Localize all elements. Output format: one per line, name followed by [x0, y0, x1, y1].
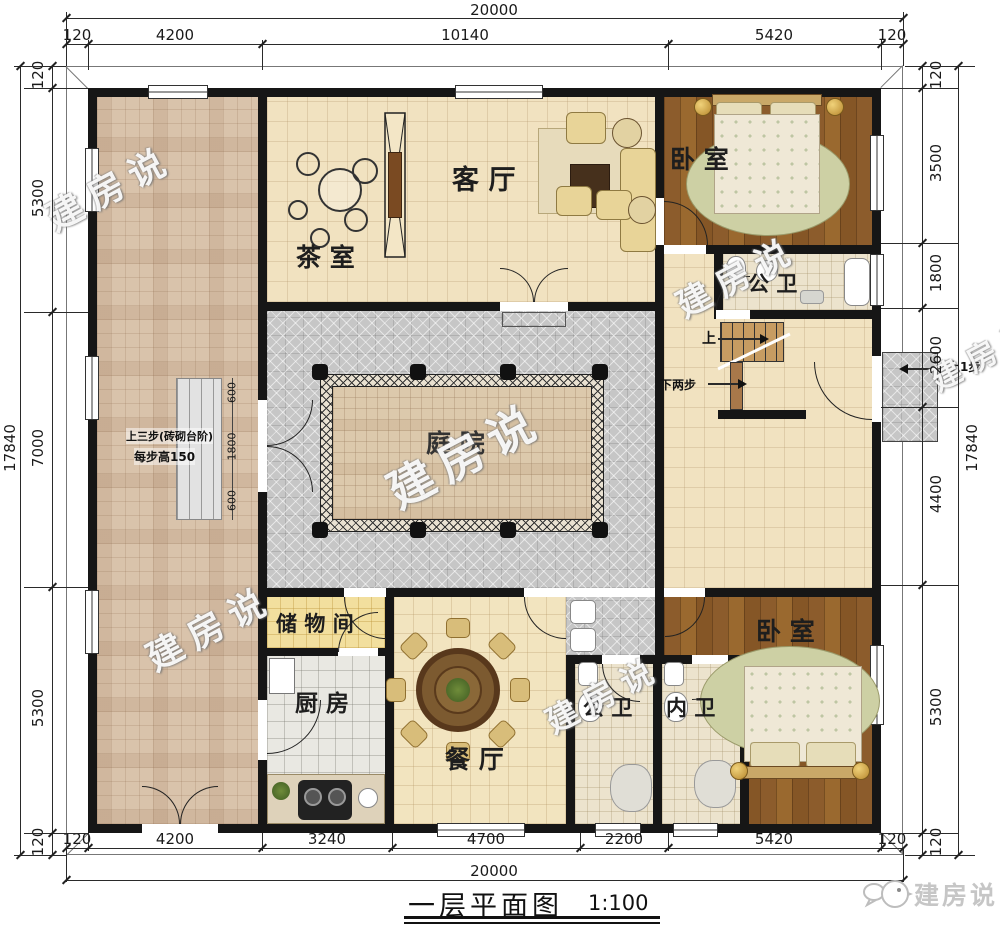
room-label-bath-ensuite: 内卫 — [666, 692, 723, 722]
steps-note-1: 上三步(砖砌台阶) — [126, 428, 213, 444]
tea-chair — [288, 200, 308, 220]
dim-seg: 120 — [927, 45, 945, 105]
bedside-lamp — [852, 762, 870, 780]
bedside-lamp — [730, 762, 748, 780]
door-opening — [664, 245, 706, 254]
armchair — [556, 186, 592, 216]
bed-pillow — [750, 742, 800, 768]
stove-burner — [328, 788, 346, 806]
dim-seg: 10140 — [415, 26, 515, 44]
drawing-scale: 1:100 — [588, 891, 649, 915]
wall-interior — [386, 588, 524, 597]
dim-seg: 5420 — [734, 830, 814, 848]
brand-mascot-icon — [862, 876, 914, 912]
column — [410, 364, 426, 380]
dim-line — [52, 66, 53, 855]
dim-seg: 120 — [927, 812, 945, 872]
wall-interior — [705, 588, 881, 597]
door-opening — [716, 310, 750, 319]
dim-seg: 2600 — [927, 325, 945, 385]
stair-up-label: 上 — [702, 328, 716, 348]
dim-seg: 120 — [29, 812, 47, 872]
dim-ext — [905, 66, 975, 67]
dim-seg: 7000 — [29, 418, 47, 478]
door-opening — [524, 588, 566, 597]
side-table — [628, 196, 656, 224]
brand-name: 建房说 — [914, 876, 998, 912]
wall-interior — [258, 310, 267, 400]
caption-underline — [404, 916, 660, 919]
centerpiece-plant — [446, 678, 470, 702]
dim-seg: 1800 — [927, 243, 945, 303]
floor-plan-canvas: 上 下两步 上1步 600 1800 600 上三步(砖砌台阶) 每步高150 — [0, 0, 1000, 927]
dim-total-top: 20000 — [444, 1, 544, 19]
dim-seg: 4400 — [927, 464, 945, 524]
bed-headboard — [744, 766, 862, 779]
wall-interior — [378, 648, 385, 656]
dim-seg: 4200 — [135, 26, 215, 44]
dim-line — [66, 44, 903, 45]
dim-line — [922, 66, 923, 855]
door-opening — [258, 700, 267, 760]
column — [500, 364, 516, 380]
stair-down-arrow — [708, 383, 740, 385]
dim-line — [958, 66, 959, 855]
room-label-bedroom-bottom: 卧室 — [756, 612, 824, 648]
wall-interior — [267, 648, 338, 656]
sink — [570, 600, 596, 624]
stove-burner — [304, 788, 322, 806]
wall-interior — [568, 302, 664, 311]
door-opening — [692, 655, 728, 664]
kitchen-plant — [272, 782, 290, 800]
column — [592, 522, 608, 538]
entry-threshold-pad — [502, 312, 566, 327]
wall-interior — [258, 88, 267, 310]
dim-seg: 5300 — [29, 168, 47, 228]
dining-chair — [510, 678, 530, 702]
dim-ext — [905, 855, 975, 856]
door-opening — [258, 400, 267, 492]
wall-interior — [655, 588, 664, 655]
dim-seg: 4200 — [135, 830, 215, 848]
window — [85, 356, 99, 420]
wall-interior — [718, 410, 806, 419]
dim-ext — [14, 66, 66, 67]
window — [148, 85, 208, 99]
stair-up-arrow — [718, 338, 762, 340]
window — [85, 590, 99, 654]
steps-dim: 1800 — [226, 429, 239, 465]
room-label-bedroom-top: 卧室 — [670, 140, 738, 176]
wall-interior — [258, 302, 500, 311]
dim-total-left: 17840 — [1, 418, 19, 478]
dim-total-right: 17840 — [963, 418, 981, 478]
dim-seg: 2200 — [584, 830, 664, 848]
window — [870, 254, 884, 306]
window — [870, 135, 884, 211]
steps-dim: 600 — [226, 375, 239, 411]
sink — [570, 628, 596, 652]
column — [500, 522, 516, 538]
kitchen-sink — [358, 788, 378, 808]
dim-seg: 3240 — [287, 830, 367, 848]
door-opening — [344, 588, 386, 597]
arrow-head — [738, 379, 752, 389]
dim-line — [20, 66, 21, 855]
dim-ext — [66, 12, 67, 66]
tv-cabinet — [388, 152, 402, 218]
dim-seg: 5300 — [29, 678, 47, 738]
column — [312, 364, 328, 380]
dim-total-bottom: 20000 — [444, 862, 544, 880]
dim-ext — [24, 312, 88, 313]
dim-ext — [14, 855, 66, 856]
wall-interior — [655, 88, 664, 198]
steps-note-2: 每步高150 — [134, 448, 195, 465]
wall-interior — [385, 597, 394, 824]
steps-dim: 600 — [226, 483, 239, 519]
column — [592, 364, 608, 380]
dim-seg: 120 — [29, 45, 47, 105]
dim-seg: 5300 — [927, 677, 945, 737]
arrow-head — [760, 334, 774, 344]
side-table — [612, 118, 642, 148]
room-label-tea: 茶室 — [296, 238, 364, 274]
armchair — [566, 112, 606, 144]
tea-chair — [352, 158, 378, 184]
door-opening — [872, 356, 881, 422]
bedside-lamp — [694, 98, 712, 116]
dining-chair — [386, 678, 406, 702]
room-label-living: 客厅 — [452, 158, 525, 197]
dim-ext — [24, 88, 88, 89]
window — [673, 823, 718, 837]
fridge — [269, 658, 295, 694]
bedside-lamp — [826, 98, 844, 116]
stair-down-label: 下两步 — [660, 376, 696, 393]
dim-seg: 3500 — [927, 133, 945, 193]
wall-interior — [655, 245, 664, 596]
caption-underline — [404, 922, 660, 924]
dim-line — [66, 848, 903, 849]
door-opening — [500, 302, 568, 311]
room-label-dining: 餐厅 — [445, 740, 513, 776]
wall-interior — [258, 760, 267, 824]
armchair — [596, 190, 632, 220]
tea-chair — [344, 208, 368, 232]
tea-chair — [296, 152, 320, 176]
column — [312, 522, 328, 538]
dim-seg: 4700 — [446, 830, 526, 848]
wall-interior — [566, 655, 575, 824]
door-opening — [665, 588, 705, 597]
room-label-kitchen: 厨房 — [295, 684, 357, 718]
dim-line — [66, 880, 903, 881]
window — [455, 85, 543, 99]
dim-ext — [24, 587, 88, 588]
brand-logo: 建房说 — [862, 876, 998, 912]
room-label-storage: 储物间 — [276, 608, 361, 638]
dining-chair — [446, 618, 470, 638]
dim-ext — [903, 12, 904, 66]
bed-pillow — [806, 742, 856, 768]
bathtub — [844, 258, 870, 306]
column — [410, 522, 426, 538]
dim-seg: 5420 — [724, 26, 824, 44]
arrow-head — [894, 364, 908, 374]
shower-mat — [610, 764, 652, 812]
dim-ext — [24, 833, 88, 834]
